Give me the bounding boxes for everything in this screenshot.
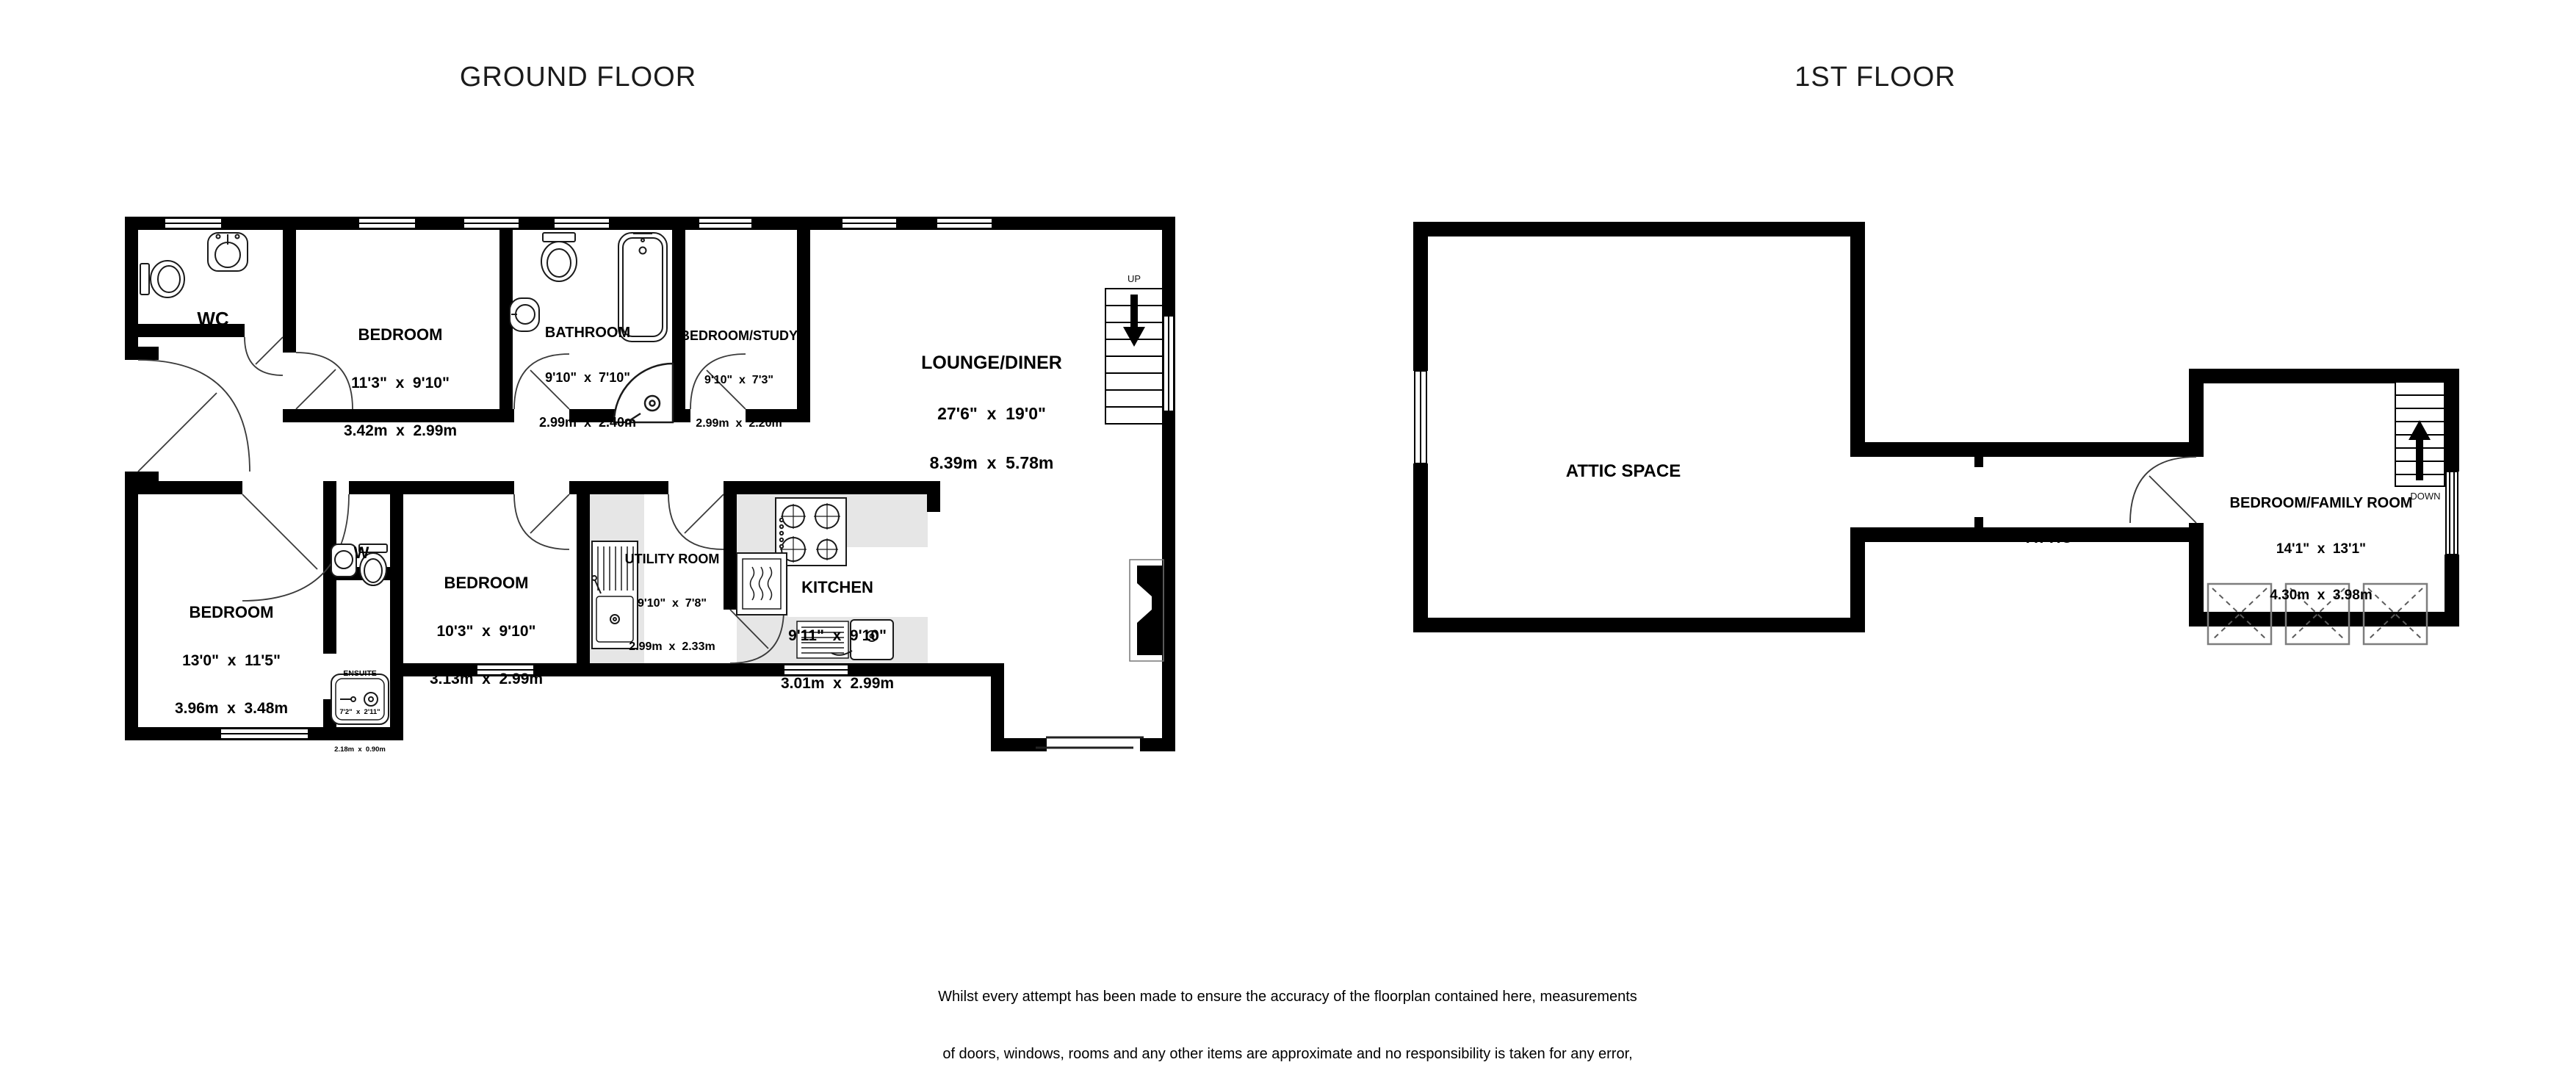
room-name: BEDROOM: [430, 574, 543, 593]
room-size-imperial: 13'0" x 11'5": [175, 651, 288, 671]
room-size-imperial: 9'11" x 9'10": [781, 627, 894, 646]
room-size-imperial: 27'6" x 19'0": [921, 403, 1062, 424]
room-size-imperial: 9'10" x 7'8": [625, 596, 720, 611]
stairs-down-label: DOWN: [2410, 491, 2440, 502]
room-label-bathroom: BATHROOM 9'10" x 7'10" 2.99m x 2.40m: [539, 295, 636, 460]
room-size-imperial: 11'3" x 9'10": [344, 374, 457, 393]
room-label-kitchen: KITCHEN 9'11" x 9'10" 3.01m x 2.99m: [781, 549, 894, 721]
room-name: BEDROOM: [175, 603, 288, 623]
room-name: UTILITY ROOM: [625, 552, 720, 568]
sink-icon: [510, 298, 539, 331]
room-size-metric: 8.39m x 5.78m: [921, 452, 1062, 473]
room-name: BEDROOM: [344, 325, 457, 345]
room-name: BEDROOM/STUDY: [680, 328, 798, 344]
fireplace-icon: [1130, 560, 1163, 661]
room-label-bedroom-study: BEDROOM/STUDY 9'10" x 7'3" 2.99m x 2.20m: [680, 300, 798, 459]
floorplan-drawing: [0, 0, 2576, 1076]
room-name: ATTIC: [2026, 528, 2072, 548]
patio-door: [1036, 737, 1144, 748]
room-name: ENSUITE: [334, 669, 386, 679]
room-label-utility: UTILITY ROOM 9'10" x 7'8" 2.99m x 2.33m: [625, 523, 720, 682]
floorplan-page: GROUND FLOOR 1ST FLOOR WC BEDROOM 11'3" …: [0, 0, 2576, 1076]
room-size-metric: 3.13m x 2.99m: [430, 670, 543, 689]
stairs-up-label: UP: [1128, 273, 1141, 284]
room-name: BEDROOM/FAMILY ROOM: [2230, 494, 2413, 512]
first-floor-title: 1ST FLOOR: [1794, 62, 1955, 93]
room-size-metric: 2.99m x 2.20m: [680, 416, 798, 431]
room-size-imperial: 9'10" x 7'10": [539, 370, 636, 386]
room-name: WC: [197, 308, 228, 331]
room-name: KITCHEN: [781, 578, 894, 598]
disclaimer: Whilst every attempt has been made to en…: [934, 949, 1641, 1076]
room-label-bedroom-2: BEDROOM 13'0" x 11'5" 3.96m x 3.48m: [175, 574, 288, 746]
room-label-attic: ATTIC: [2026, 488, 2072, 587]
room-size-imperial: 7'2" x 2'11": [334, 708, 386, 717]
doors-first: [2130, 457, 2196, 523]
room-size-imperial: 9'10" x 7'3": [680, 373, 798, 388]
ground-floor-title: GROUND FLOOR: [460, 62, 696, 93]
room-size-metric: 2.18m x 0.90m: [334, 745, 386, 754]
room-size-metric: 3.42m x 2.99m: [344, 422, 457, 441]
room-name: LOUNGE/DINER: [921, 352, 1062, 375]
room-size-imperial: 10'3" x 9'10": [430, 622, 543, 641]
toilet-icon: [541, 233, 577, 281]
room-label-bedroom-1: BEDROOM 11'3" x 9'10" 3.42m x 2.99m: [344, 297, 457, 469]
disclaimer-line: Whilst every attempt has been made to en…: [934, 987, 1641, 1006]
room-size-metric: 3.01m x 2.99m: [781, 674, 894, 693]
room-size-metric: 2.99m x 2.33m: [625, 640, 720, 654]
room-label-attic-space: ATTIC SPACE: [1566, 417, 1681, 524]
room-label-wardrobe: W: [353, 504, 370, 602]
toilet-icon: [140, 261, 184, 297]
room-size-metric: 3.96m x 3.48m: [175, 699, 288, 718]
room-name: W: [353, 544, 370, 563]
room-size-metric: 4.30m x 3.98m: [2230, 587, 2413, 604]
room-label-ensuite: ENSUITE 7'2" x 2'11" 2.18m x 0.90m: [334, 640, 386, 783]
room-name: BATHROOM: [539, 324, 636, 342]
room-size-imperial: 14'1" x 13'1": [2230, 541, 2413, 557]
disclaimer-line: of doors, windows, rooms and any other i…: [934, 1044, 1641, 1064]
room-label-bedroom-family: BEDROOM/FAMILY ROOM 14'1" x 13'1" 4.30m …: [2230, 466, 2413, 632]
room-label-lounge-diner: LOUNGE/DINER 27'6" x 19'0" 8.39m x 5.78m: [921, 323, 1062, 502]
room-name: ATTIC SPACE: [1566, 461, 1681, 482]
room-size-metric: 2.99m x 2.40m: [539, 415, 636, 431]
room-label-wc: WC: [197, 261, 228, 378]
oven-icon: [737, 553, 787, 615]
room-label-bedroom-3: BEDROOM 10'3" x 9'10" 3.13m x 2.99m: [430, 545, 543, 717]
